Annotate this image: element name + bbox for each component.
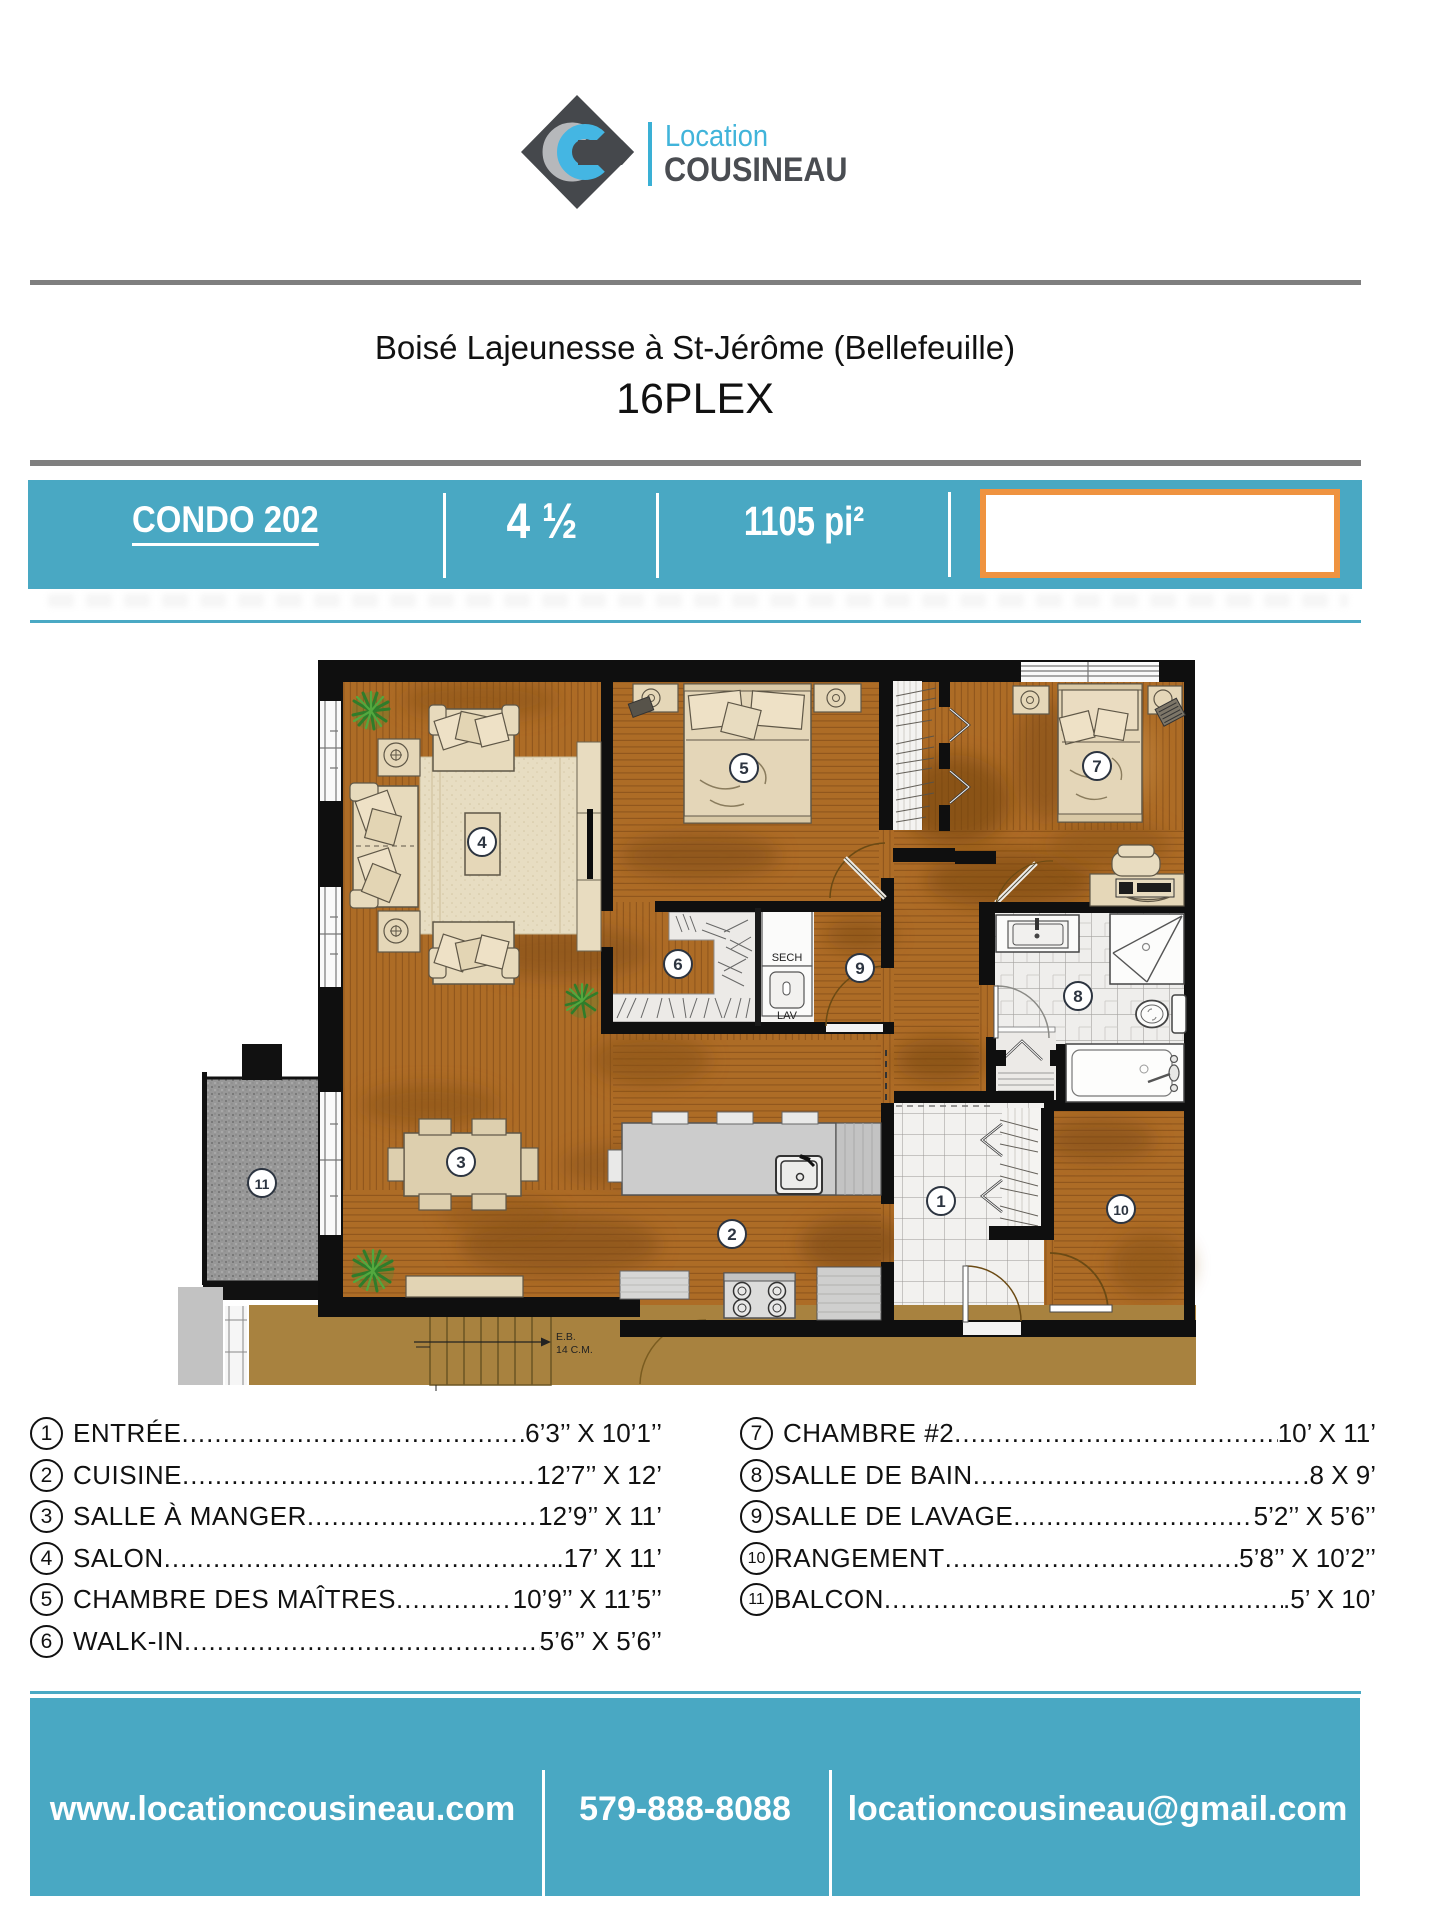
svg-text:3: 3 [456, 1153, 465, 1172]
svg-text:11: 11 [255, 1176, 270, 1192]
svg-text:E.B.: E.B. [556, 1331, 576, 1343]
svg-text:SECH: SECH [772, 952, 803, 964]
svg-text:8: 8 [1073, 987, 1082, 1006]
svg-text:2: 2 [727, 1225, 736, 1244]
svg-text:LAV: LAV [777, 1010, 798, 1022]
svg-text:10: 10 [1113, 1202, 1129, 1218]
svg-text:6: 6 [673, 955, 682, 974]
svg-text:9: 9 [855, 959, 864, 978]
svg-text:14 C.M.: 14 C.M. [556, 1344, 593, 1356]
svg-text:1: 1 [936, 1192, 945, 1211]
svg-text:7: 7 [1092, 757, 1101, 776]
svg-text:4: 4 [477, 833, 487, 852]
svg-text:5: 5 [739, 759, 748, 778]
